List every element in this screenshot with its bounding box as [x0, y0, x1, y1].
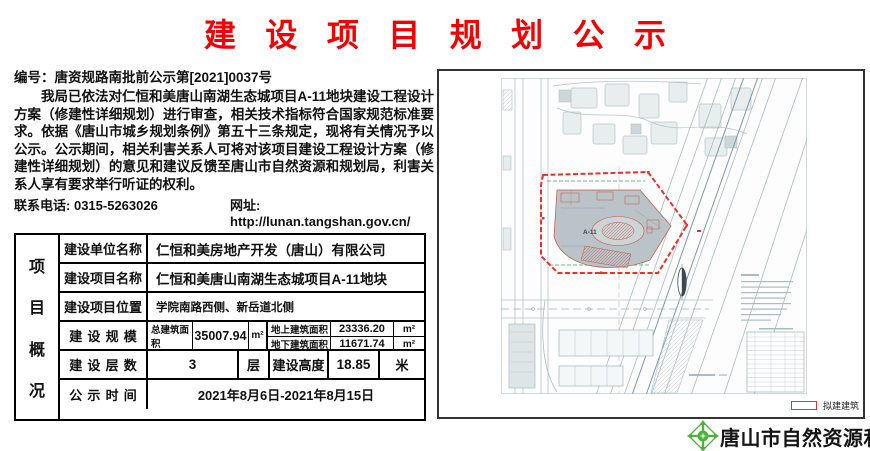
scale-total-unit: m²: [249, 322, 268, 349]
scale-below-value: 11671.74: [331, 337, 394, 351]
height-label: 建设高度: [270, 351, 329, 378]
contact-phone: 联系电话: 0315-5263026: [14, 195, 158, 214]
footer: 唐山市自然资源和规划局: [686, 420, 870, 451]
period-value: 2021年8月6日-2021年8月15日: [148, 380, 424, 409]
agency-name: 唐山市自然资源和规划局: [720, 422, 870, 451]
indicator-table: [747, 328, 804, 392]
contact-website: 网址: http://lunan.tangshan.gov.cn/: [230, 195, 434, 229]
scale-total-value: 35007.94: [193, 322, 249, 349]
floors-label: 建设层数: [60, 351, 148, 378]
map-legend: 拟建建筑: [791, 399, 859, 412]
contact-phone-label: 联系电话:: [14, 198, 70, 213]
floors-value: 3: [148, 351, 239, 378]
site-plan-panel: A-11: [437, 69, 865, 419]
project-overview-table: 项 目 概 况 建设单位名称 仁恒和美房地产开发（唐山）有限公司 建设项目名称 …: [14, 233, 426, 421]
period-label: 公示时间: [60, 380, 148, 409]
table-row-location: 建设项目位置 学院南路西侧、新岳道北侧: [60, 293, 424, 322]
unit-label: 建设单位名称: [60, 235, 148, 262]
page-title: 建设项目规划公示: [0, 10, 870, 56]
contact-row: 联系电话: 0315-5263026 网址: http://lunan.tang…: [14, 195, 434, 213]
announcement-page: 建设项目规划公示 编号：唐资规路南批前公示第[2021]0037号 我局已依法对…: [0, 0, 870, 451]
site-plan-drawing: A-11: [501, 78, 807, 394]
doc-number: 编号：唐资规路南批前公示第[2021]0037号: [14, 66, 434, 86]
contact-website-label: 网址:: [230, 198, 260, 213]
table-row-project: 建设项目名称 仁恒和美唐山南湖生态城项目A-11地块: [60, 264, 424, 293]
contact-phone-value: 0315-5263026: [74, 198, 158, 213]
height-unit: 米: [380, 351, 424, 378]
height-value: 18.85: [329, 351, 380, 378]
scale-below-label: 地下建筑面积: [268, 337, 331, 351]
agency-logo-icon: [686, 420, 720, 451]
scale-substack: 地上建筑面积 23336.20 m² 地下建筑面积 11671.74 m²: [268, 322, 424, 349]
contact-website-value[interactable]: http://lunan.tangshan.gov.cn/: [230, 214, 410, 229]
table-section-title: 项 目 概 况: [16, 235, 60, 419]
scale-above-label: 地上建筑面积: [268, 322, 331, 336]
floors-unit: 层: [239, 351, 270, 378]
table-row-floors: 建设层数 3 层 建设高度 18.85 米: [60, 351, 424, 380]
project-label: 建设项目名称: [60, 264, 148, 291]
unit-value: 仁恒和美房地产开发（唐山）有限公司: [148, 235, 424, 262]
announcement-body: 我局已依法对仁恒和美唐山南湖生态城项目A-11地块建设工程设计方案（修建性详细规…: [14, 88, 434, 193]
scale-above-value: 23336.20: [331, 322, 394, 336]
table-row-period: 公示时间 2021年8月6日-2021年8月15日: [60, 380, 424, 409]
scale-total-label: 总建筑面积: [148, 322, 193, 349]
location-value: 学院南路西侧、新岳道北侧: [148, 293, 424, 320]
project-value: 仁恒和美唐山南湖生态城项目A-11地块: [148, 264, 424, 291]
legend-label: 拟建建筑: [823, 399, 859, 412]
location-label: 建设项目位置: [60, 293, 148, 320]
table-row-unit: 建设单位名称 仁恒和美房地产开发（唐山）有限公司: [60, 235, 424, 264]
scale-label: 建设规模: [60, 322, 148, 349]
table-row-scale: 建设规模 总建筑面积 35007.94 m² 地上建筑面积 23336.20 m…: [60, 322, 424, 351]
scale-below-unit: m²: [394, 337, 424, 351]
proposed-building-swatch: [791, 401, 817, 410]
site-parcel-label: A-11: [583, 229, 597, 236]
scale-above-unit: m²: [394, 322, 424, 336]
